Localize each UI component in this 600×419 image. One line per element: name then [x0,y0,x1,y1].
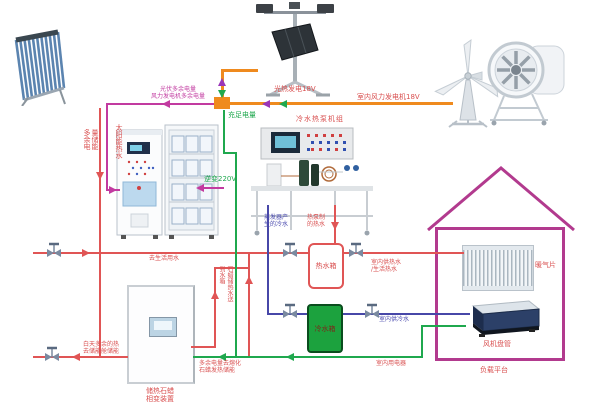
label-inverter: 逆变220V [204,175,236,183]
power-junction-box [214,97,230,109]
cold-water-tank: 冷水箱 [307,304,343,353]
paraffin-outlet-pipe [191,346,216,348]
label-load-platform: 负载平台 [480,366,508,374]
flow-arrow-up [218,78,226,86]
label-surplus-storage: 多余电量储能 [83,129,99,155]
label-to-domestic-water: 去生活用水 [149,255,179,263]
solar-tracker-image [236,2,354,98]
valve-icon [281,301,299,321]
fan-source-image [476,34,572,126]
hot-water-tank: 热水箱 [308,243,344,289]
fan-coil-image [459,298,541,338]
flow-arrow-left [279,100,287,108]
magenta-wire-top [106,103,216,105]
label-surplus-to-battery: 光伏多余电量 风力发电机多余电量 [140,86,216,100]
flow-arrow-down [218,90,226,98]
radiator-image [462,245,534,291]
solar-hot-pipe [99,108,101,358]
valve-icon [43,344,61,364]
flow-arrow-left [72,353,80,361]
flow-arrow-left [262,100,270,108]
cold-pipe-to-house [339,313,470,315]
valve-icon [347,240,365,260]
valve-icon [281,240,299,260]
flow-arrow-down [96,172,104,180]
valve-icon [45,240,63,260]
label-solar-hot-water: 太阳能热水 [115,124,123,170]
cold-water-tank-label: 冷水箱 [315,324,336,334]
label-paraffin-device: 储热石蜡 相变装置 [143,387,177,403]
hot-water-tank-label: 热水箱 [316,261,337,271]
label-indoor-cold-water: 室内供冷水 [379,316,409,324]
label-paraffin-to-tank: 石蜡储热水送到水箱 [217,266,233,306]
green-wire-fan-coil [421,325,466,327]
label-fan-coil: 风机盘管 [483,340,511,348]
label-radiator: 暖气片 [535,261,556,269]
label-solar-thermal-gen: 光热发电18V [274,85,316,93]
flow-arrow-left [162,100,170,108]
label-heat-pump-hot: 热泵制 的热水 [307,214,325,228]
magenta-wire-drop [106,103,108,191]
label-indoor-appliances: 室内用电器 [376,360,406,368]
paraffin-to-tank-pipe [248,252,250,358]
paraffin-storage-device-image [127,285,195,384]
label-evaporator-cold: 蒸发器产 生的冷水 [264,214,288,228]
paraffin-device-display [149,317,177,337]
flow-arrow-down [331,222,339,230]
flow-arrow-left [196,184,204,192]
flow-arrow-right [82,249,90,257]
label-wind-gen: 室内风力发电机18V [357,93,420,101]
green-wire-junction-drop [223,110,225,154]
green-wire-bottom [193,356,423,358]
paraffin-riser-pipe [214,267,216,348]
label-day-surplus-heat: 白天多余的热 去储能舱储能 [83,341,119,355]
flow-arrow-right [109,186,117,194]
orange-wire-pv-top [221,69,258,72]
solar-collector-image [4,28,72,106]
system-diagram: 热水箱 冷水箱 [0,0,600,419]
house-roof [424,164,578,232]
flow-arrow-up [245,276,253,284]
flow-arrow-left [286,353,294,361]
label-heat-pump-unit: 冷水热泵机组 [296,115,344,123]
label-surplus-melt: 多余电量去熔化 石蜡发热储能 [199,360,241,374]
label-indoor-hot-water: 室内供热水 /生活热水 [371,259,401,273]
label-sufficient-power: 充足电量 [228,111,256,119]
green-wire-house-riser [421,325,423,358]
